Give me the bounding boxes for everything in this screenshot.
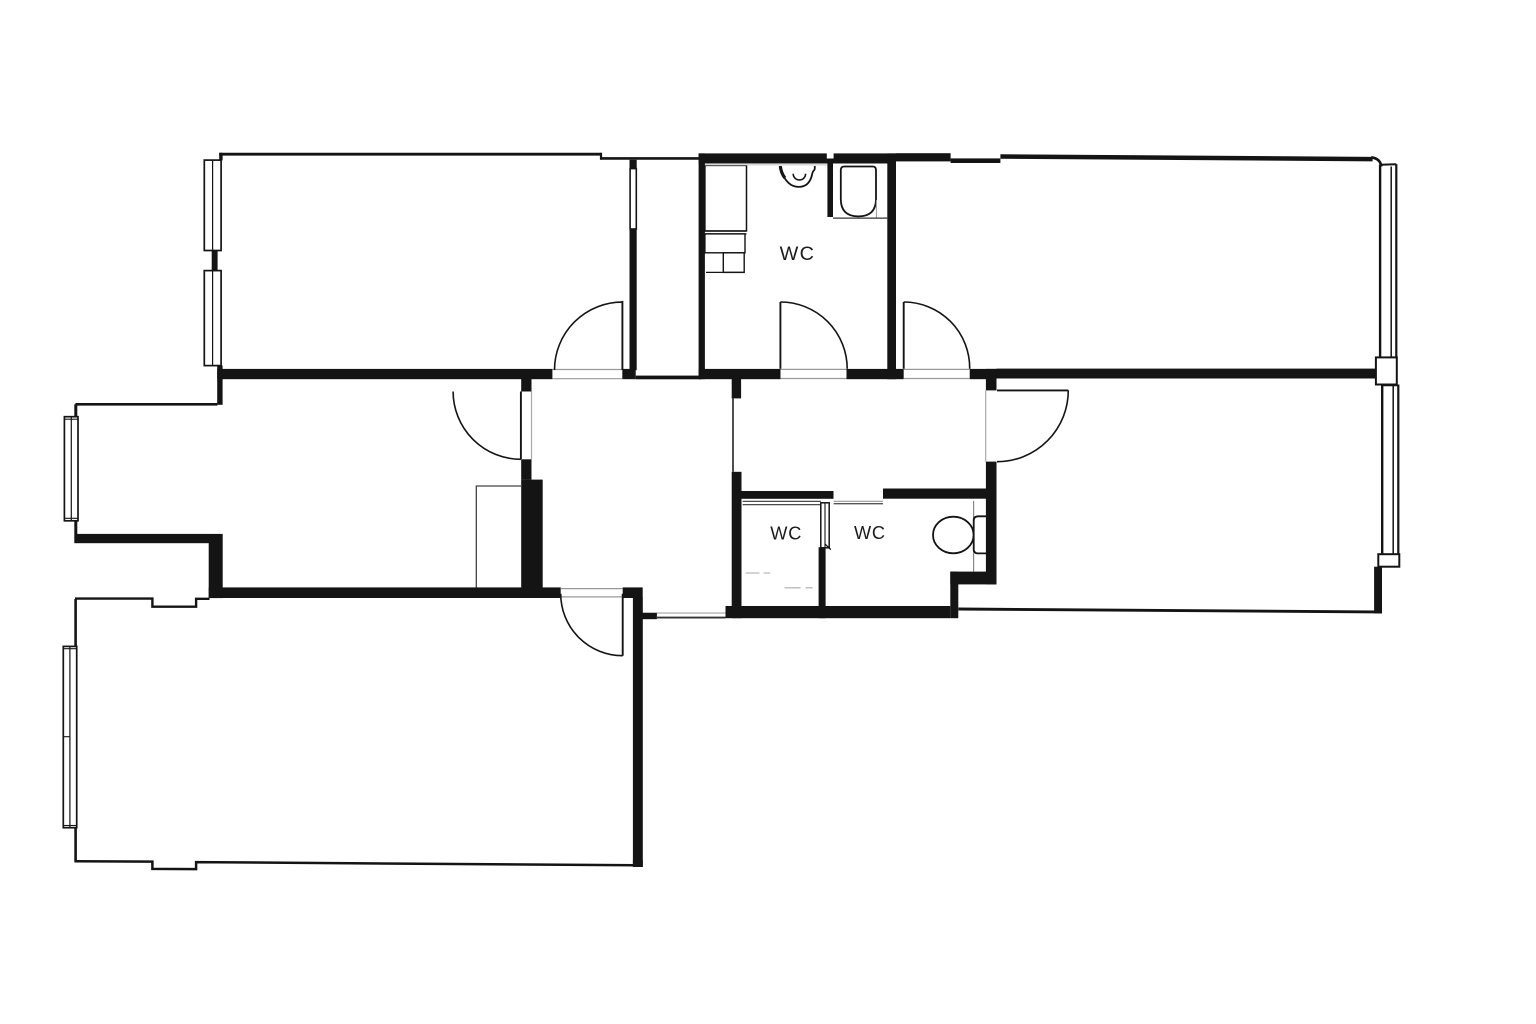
svg-text:WC: WC bbox=[780, 243, 816, 265]
svg-text:WC: WC bbox=[770, 524, 802, 544]
svg-text:WC: WC bbox=[854, 523, 886, 543]
